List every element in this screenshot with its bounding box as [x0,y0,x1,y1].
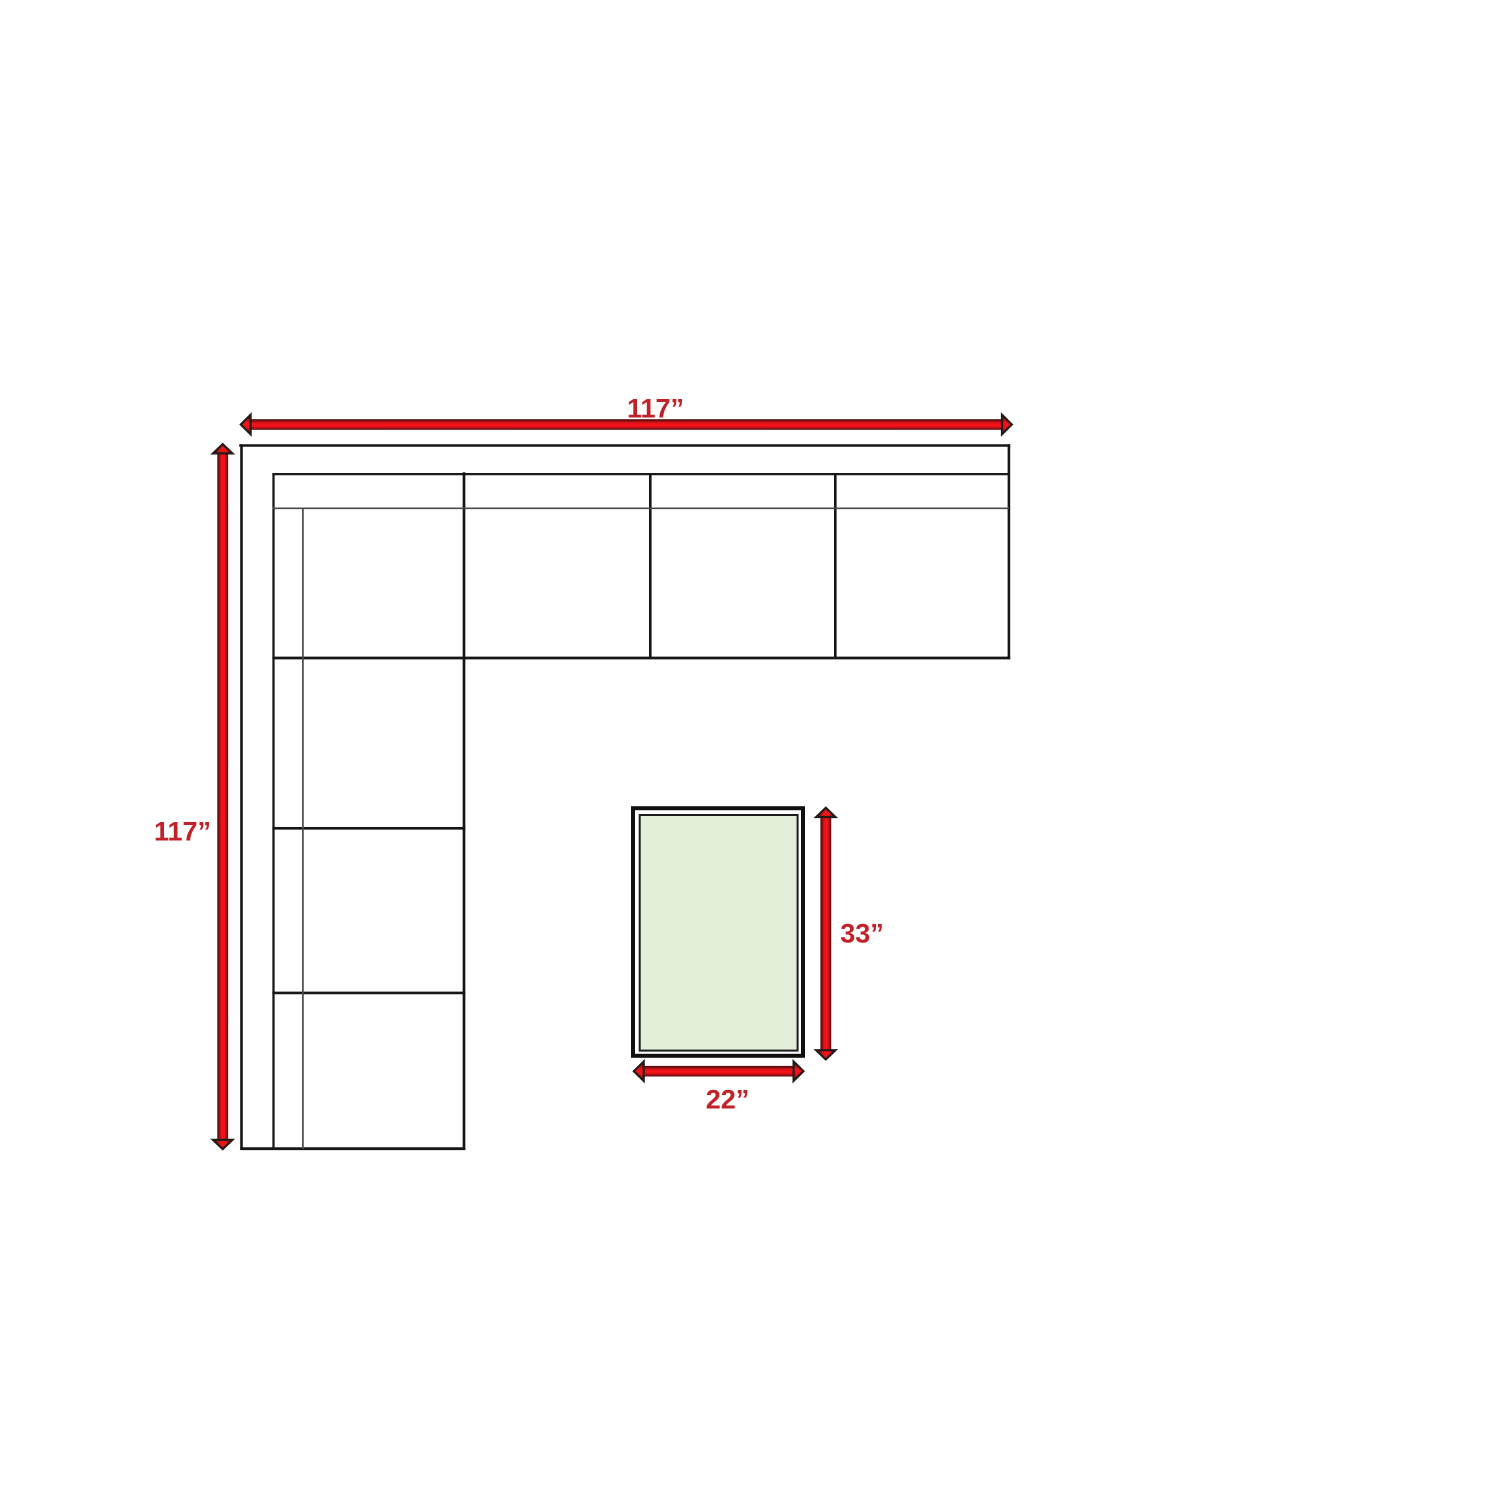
svg-text:33”: 33” [840,919,884,949]
svg-text:22”: 22” [706,1085,750,1115]
svg-text:117”: 117” [154,817,211,847]
svg-text:117”: 117” [627,393,684,423]
